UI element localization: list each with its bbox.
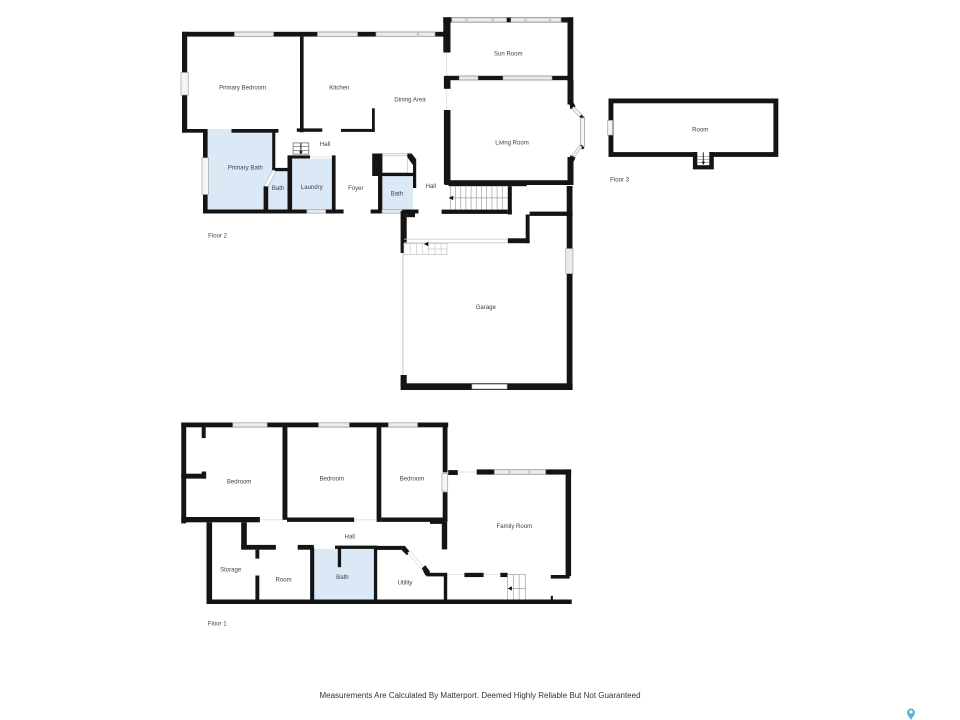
svg-text:Bedroom: Bedroom bbox=[320, 476, 345, 482]
svg-text:Room: Room bbox=[276, 577, 292, 583]
svg-text:Floor 2: Floor 2 bbox=[208, 234, 227, 240]
svg-text:Bedroom: Bedroom bbox=[227, 480, 252, 486]
svg-text:Family Room: Family Room bbox=[497, 524, 533, 530]
svg-text:Bath: Bath bbox=[272, 186, 284, 192]
svg-text:Kitchen: Kitchen bbox=[329, 86, 349, 92]
svg-text:Living Room: Living Room bbox=[495, 140, 529, 146]
svg-text:Bath: Bath bbox=[391, 191, 403, 197]
svg-text:Sun Room: Sun Room bbox=[494, 52, 523, 58]
svg-text:Laundry: Laundry bbox=[301, 185, 324, 191]
svg-text:Hall: Hall bbox=[320, 142, 330, 148]
svg-text:Bath: Bath bbox=[336, 575, 348, 581]
svg-text:Primary Bedroom: Primary Bedroom bbox=[219, 86, 266, 92]
svg-text:Hall: Hall bbox=[426, 184, 436, 190]
svg-text:Storage: Storage bbox=[220, 568, 242, 574]
svg-text:Utility: Utility bbox=[398, 581, 414, 587]
svg-text:Dining Area: Dining Area bbox=[394, 98, 426, 104]
svg-text:Primary Bath: Primary Bath bbox=[228, 165, 263, 171]
svg-text:Garage: Garage bbox=[476, 305, 497, 311]
svg-text:Room: Room bbox=[692, 127, 708, 133]
svg-text:Floor 3: Floor 3 bbox=[610, 178, 629, 184]
svg-text:Foyer: Foyer bbox=[348, 186, 363, 192]
svg-text:Floor 1: Floor 1 bbox=[208, 621, 227, 627]
svg-text:Hall: Hall bbox=[344, 535, 354, 541]
svg-text:Measurements Are Calculated By: Measurements Are Calculated By Matterpor… bbox=[319, 691, 640, 700]
svg-text:Bedroom: Bedroom bbox=[400, 477, 425, 483]
